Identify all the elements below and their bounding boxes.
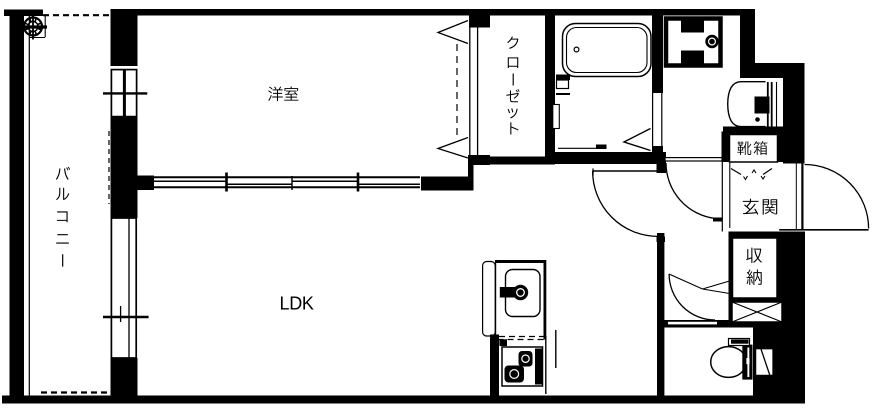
- svg-text:LDK: LDK: [280, 294, 314, 314]
